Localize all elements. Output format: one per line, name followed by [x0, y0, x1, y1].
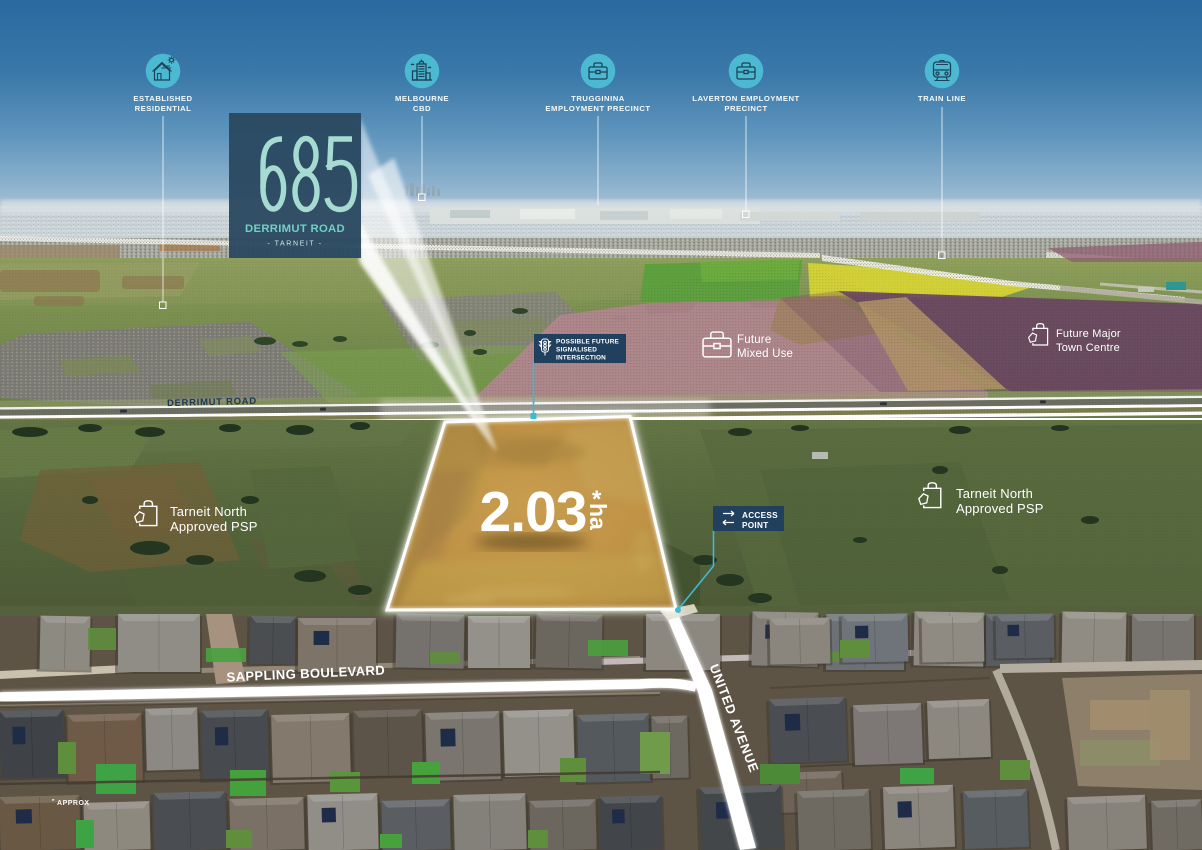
svg-text:ha: ha — [585, 503, 611, 530]
svg-text:EMPLOYMENT PRECINCT: EMPLOYMENT PRECINCT — [545, 104, 650, 113]
svg-text:TRAIN LINE: TRAIN LINE — [918, 94, 966, 103]
svg-text:MELBOURNE: MELBOURNE — [395, 94, 449, 103]
svg-text:SIGNALISED: SIGNALISED — [556, 347, 597, 354]
svg-text:- TARNEIT -: - TARNEIT - — [267, 241, 322, 248]
svg-text:Mixed Use: Mixed Use — [737, 348, 793, 360]
svg-text:LAVERTON EMPLOYMENT: LAVERTON EMPLOYMENT — [692, 94, 799, 103]
svg-text:Approved PSP: Approved PSP — [170, 519, 258, 534]
svg-text:* APPROX: * APPROX — [52, 799, 90, 807]
svg-text:Tarneit North: Tarneit North — [170, 504, 247, 519]
svg-text:Approved PSP: Approved PSP — [956, 501, 1044, 516]
svg-text:Future Major: Future Major — [1056, 328, 1121, 340]
svg-text:PRECINCT: PRECINCT — [724, 104, 767, 113]
svg-text:DERRIMUT ROAD: DERRIMUT ROAD — [245, 223, 345, 235]
svg-text:2.03: 2.03 — [480, 480, 587, 544]
svg-text:INTERSECTION: INTERSECTION — [556, 355, 606, 362]
svg-text:ACCESS: ACCESS — [742, 511, 778, 520]
svg-text:TRUGGININA: TRUGGININA — [571, 94, 625, 103]
svg-text:POSSIBLE FUTURE: POSSIBLE FUTURE — [556, 339, 620, 346]
svg-text:ESTABLISHED: ESTABLISHED — [133, 94, 192, 103]
svg-text:RESIDENTIAL: RESIDENTIAL — [135, 104, 192, 113]
svg-text:Tarneit North: Tarneit North — [956, 486, 1033, 501]
svg-text:CBD: CBD — [413, 104, 431, 113]
svg-text:Future: Future — [737, 334, 771, 346]
svg-text:POINT: POINT — [742, 521, 769, 530]
svg-text:Town Centre: Town Centre — [1056, 342, 1120, 354]
